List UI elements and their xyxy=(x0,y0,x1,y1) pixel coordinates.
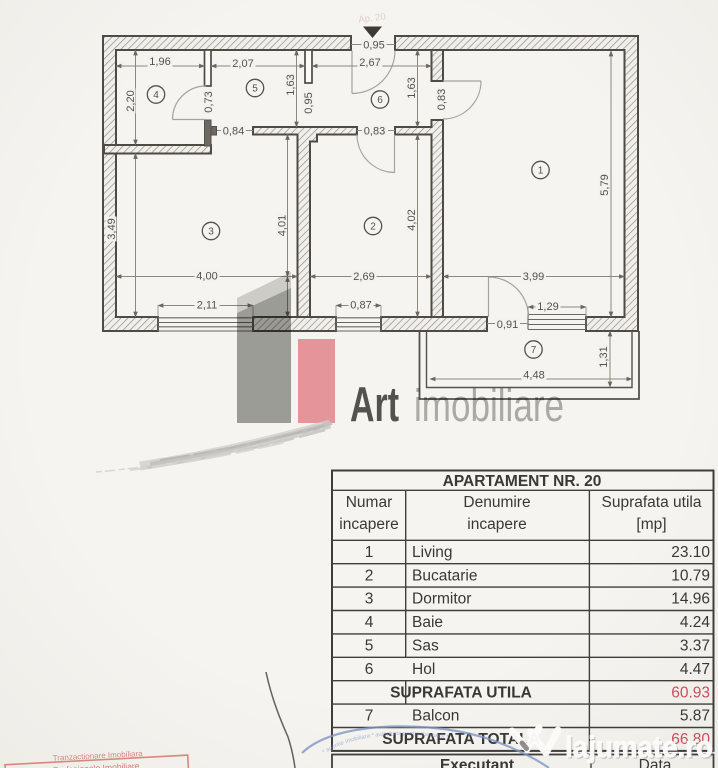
svg-text:3,49: 3,49 xyxy=(106,218,118,239)
svg-text:4,01: 4,01 xyxy=(276,215,288,236)
svg-text:1,31: 1,31 xyxy=(598,346,610,367)
svg-text:4,02: 4,02 xyxy=(406,209,418,230)
svg-text:SUPRAFATA UTILA: SUPRAFATA UTILA xyxy=(390,684,532,701)
svg-text:4,00: 4,00 xyxy=(196,270,217,282)
svg-text:0,91: 0,91 xyxy=(497,319,518,331)
svg-text:0,83: 0,83 xyxy=(436,89,448,110)
svg-text:0,95: 0,95 xyxy=(303,92,315,113)
svg-text:Art: Art xyxy=(350,378,399,432)
svg-text:1,29: 1,29 xyxy=(537,301,558,313)
svg-text:5,79: 5,79 xyxy=(599,174,611,195)
svg-text:23.10: 23.10 xyxy=(671,544,710,561)
svg-text:1: 1 xyxy=(365,544,374,561)
svg-text:incapere: incapere xyxy=(467,516,526,533)
svg-text:2,20: 2,20 xyxy=(125,90,137,111)
svg-text:4.47: 4.47 xyxy=(680,661,710,678)
svg-text:APARTAMENT NR. 20: APARTAMENT NR. 20 xyxy=(443,473,602,490)
svg-text:4: 4 xyxy=(153,90,159,101)
svg-text:Hol: Hol xyxy=(412,661,435,678)
svg-text:6: 6 xyxy=(365,661,374,678)
svg-text:4: 4 xyxy=(365,614,374,631)
svg-text:Balcon: Balcon xyxy=(412,708,459,725)
svg-text:Numar: Numar xyxy=(346,494,393,511)
svg-text:incapere: incapere xyxy=(339,516,398,533)
svg-text:0,83: 0,83 xyxy=(364,125,385,137)
svg-text:Sas: Sas xyxy=(412,638,439,655)
svg-text:Baie: Baie xyxy=(412,614,443,631)
svg-text:[mp]: [mp] xyxy=(636,516,666,533)
svg-text:3: 3 xyxy=(208,226,214,237)
svg-text:4.24: 4.24 xyxy=(680,614,711,631)
svg-text:2,69: 2,69 xyxy=(353,271,374,283)
svg-text:2,07: 2,07 xyxy=(232,58,253,70)
svg-text:0,95: 0,95 xyxy=(363,39,384,51)
svg-text:Dormitor: Dormitor xyxy=(412,591,471,608)
svg-text:Living: Living xyxy=(412,544,453,561)
svg-text:Bucatarie: Bucatarie xyxy=(412,567,477,584)
svg-text:3: 3 xyxy=(365,591,374,608)
svg-text:3,99: 3,99 xyxy=(523,271,544,283)
svg-text:Denumire: Denumire xyxy=(463,494,530,511)
svg-text:14.96: 14.96 xyxy=(671,591,710,608)
svg-text:Suprafata utila: Suprafata utila xyxy=(602,494,702,511)
svg-text:1: 1 xyxy=(538,165,544,176)
svg-text:0,73: 0,73 xyxy=(203,91,215,112)
svg-text:6: 6 xyxy=(377,95,383,106)
svg-text:5: 5 xyxy=(365,638,374,655)
svg-text:Executant: Executant xyxy=(440,757,514,768)
svg-text:1,63: 1,63 xyxy=(285,74,297,95)
svg-text:1,96: 1,96 xyxy=(149,56,170,68)
svg-text:0,87: 0,87 xyxy=(350,299,371,311)
svg-text:3.37: 3.37 xyxy=(680,638,710,655)
svg-text:lajumate.ro: lajumate.ro xyxy=(565,731,713,764)
svg-text:0,84: 0,84 xyxy=(223,125,244,137)
svg-text:5.87: 5.87 xyxy=(680,708,710,725)
svg-text:7: 7 xyxy=(365,708,374,725)
svg-text:1,63: 1,63 xyxy=(406,77,418,98)
svg-text:60.93: 60.93 xyxy=(671,684,710,701)
svg-text:2: 2 xyxy=(370,221,376,232)
svg-text:2: 2 xyxy=(365,567,374,584)
svg-text:10.79: 10.79 xyxy=(671,567,710,584)
svg-text:2,67: 2,67 xyxy=(359,57,380,69)
svg-text:2,11: 2,11 xyxy=(197,299,218,311)
svg-text:imobiliare: imobiliare xyxy=(414,380,564,431)
svg-text:7: 7 xyxy=(531,345,537,356)
svg-text:5: 5 xyxy=(252,83,258,94)
